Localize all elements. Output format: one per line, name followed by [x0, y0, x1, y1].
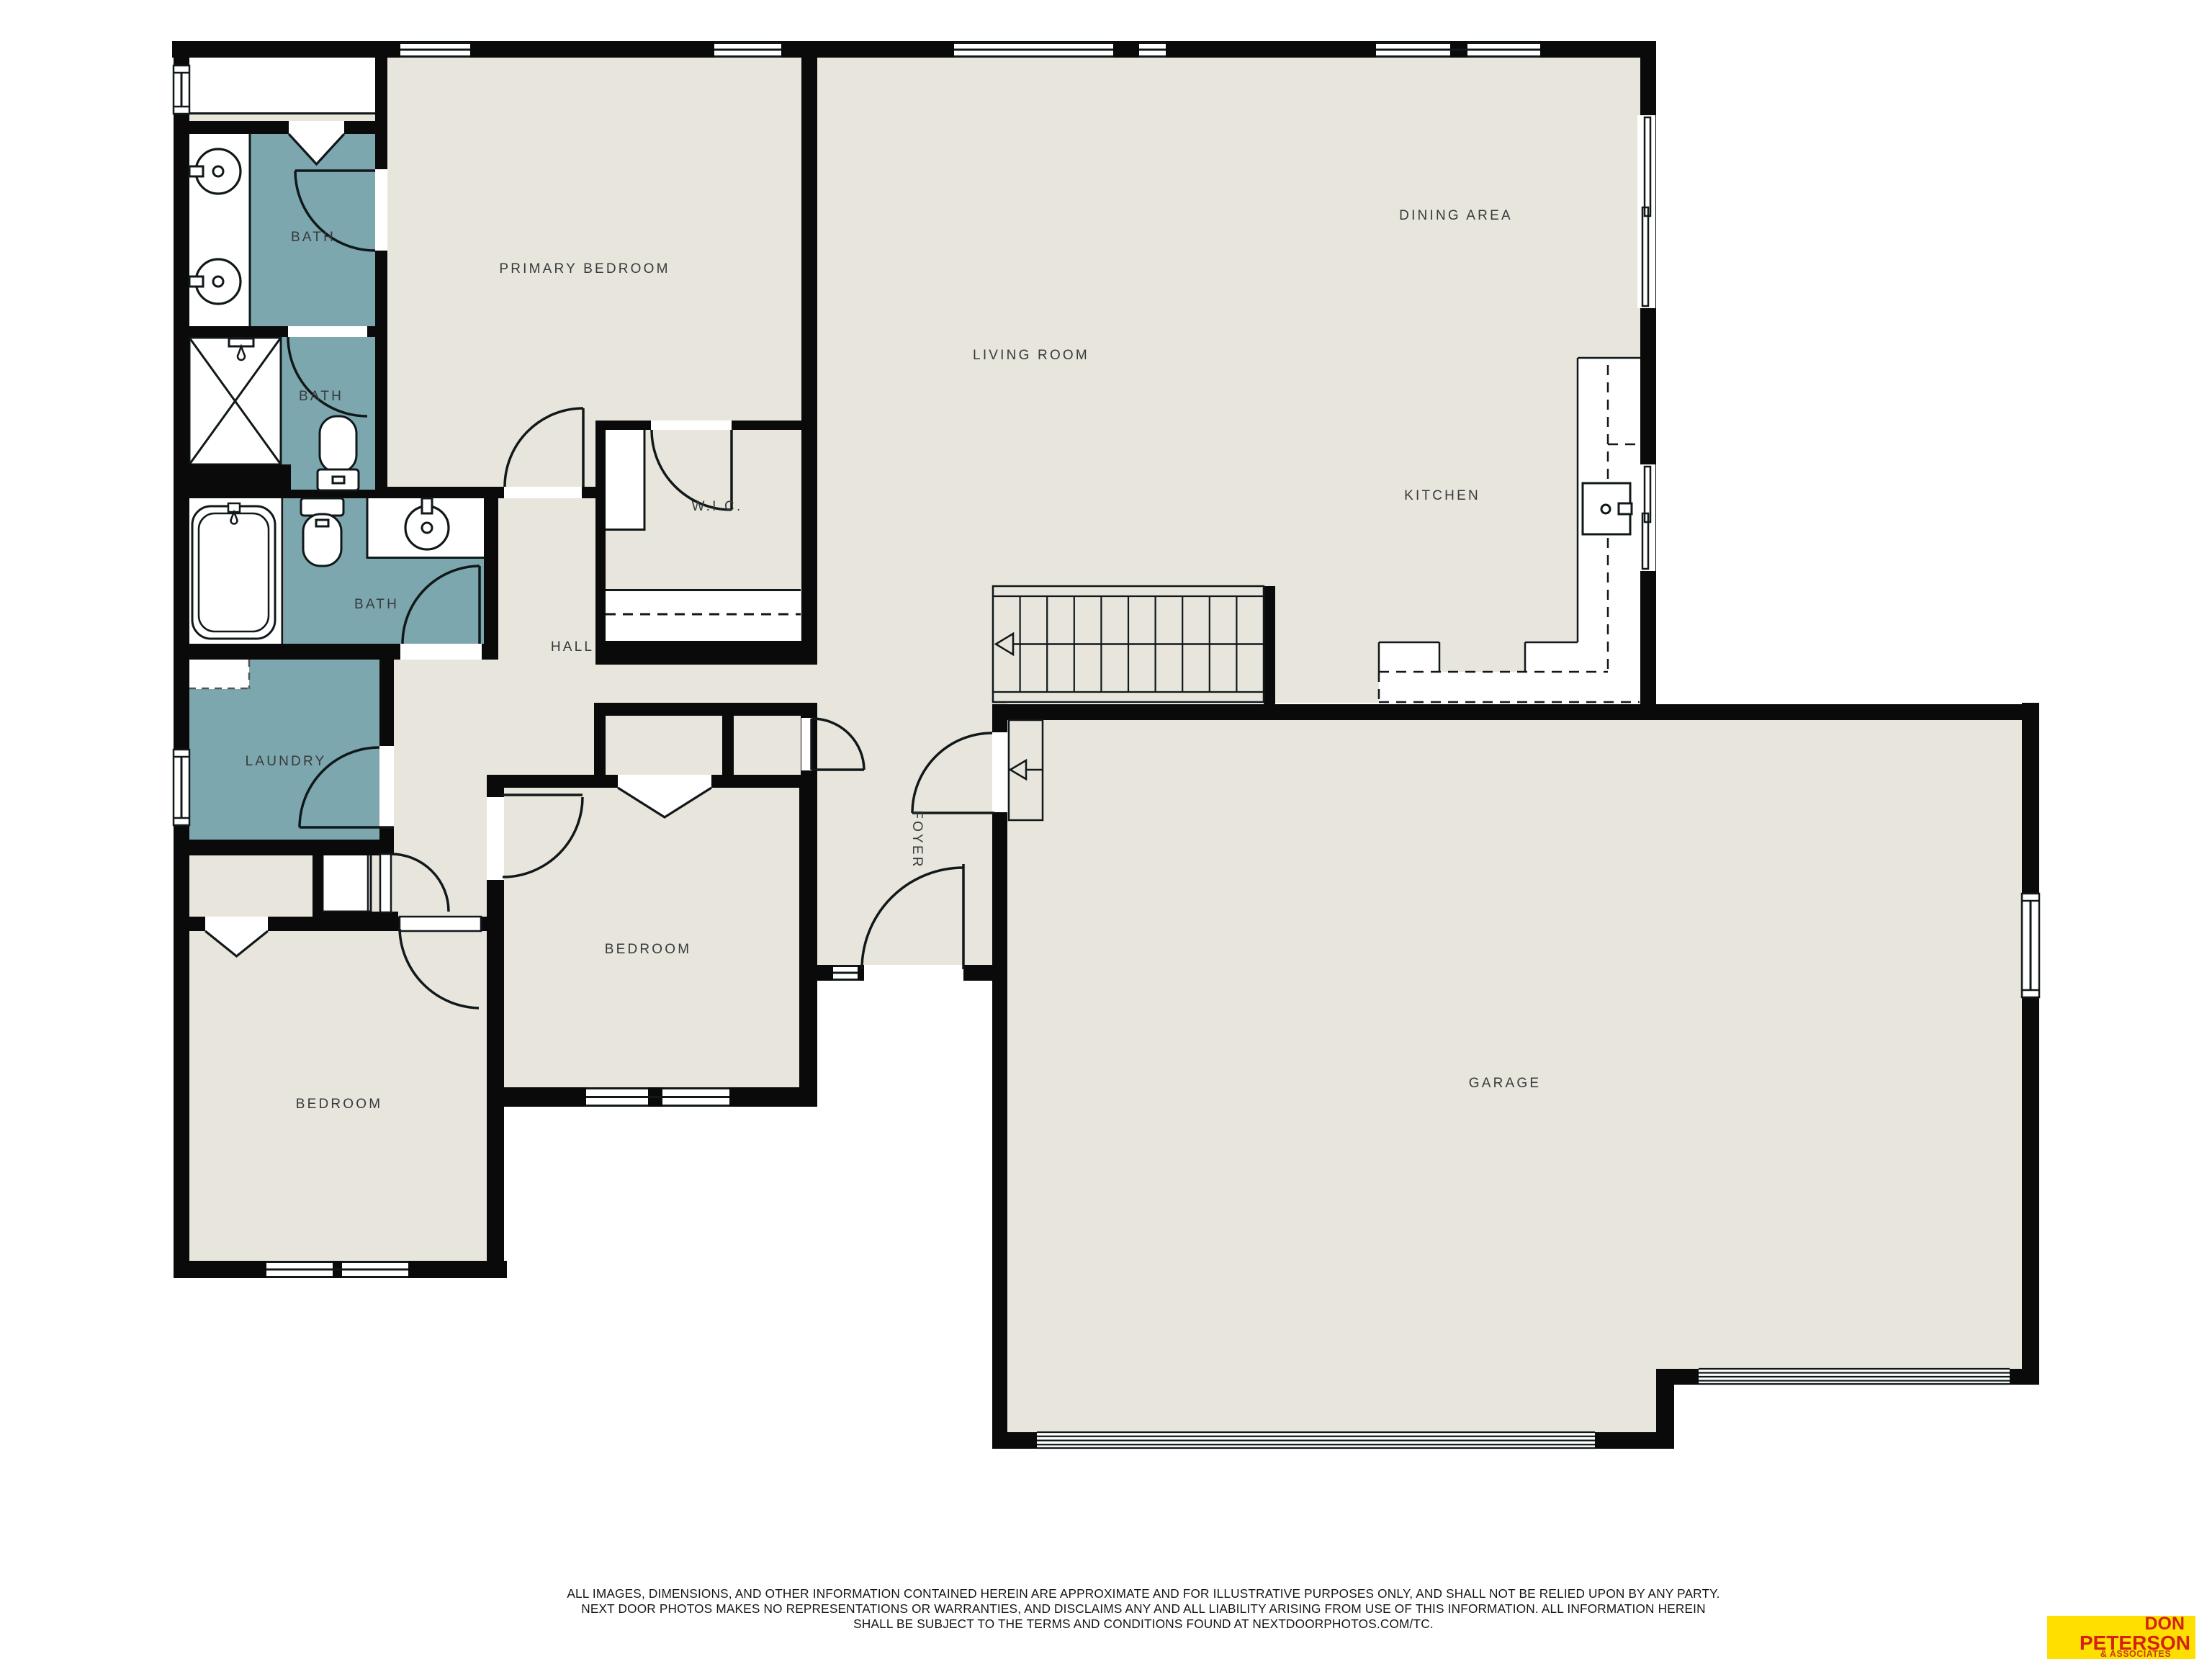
svg-text:BEDROOM: BEDROOM: [296, 1097, 383, 1112]
svg-text:FOYER: FOYER: [909, 810, 925, 868]
svg-text:NEXT DOOR PHOTOS MAKES NO REPR: NEXT DOOR PHOTOS MAKES NO REPRESENTATION…: [581, 1601, 1706, 1616]
svg-text:HALL: HALL: [551, 639, 594, 655]
svg-text:PRIMARY BEDROOM: PRIMARY BEDROOM: [499, 261, 670, 276]
svg-text:KITCHEN: KITCHEN: [1404, 488, 1480, 503]
svg-text:& ASSOCIATES: & ASSOCIATES: [2100, 1649, 2171, 1659]
svg-text:DON: DON: [2144, 1614, 2185, 1634]
svg-text:LIVING ROOM: LIVING ROOM: [973, 348, 1089, 363]
svg-text:BATH: BATH: [291, 230, 336, 245]
svg-text:W.I.C.: W.I.C.: [692, 499, 743, 514]
svg-text:BATH: BATH: [354, 597, 399, 612]
svg-text:LAUNDRY: LAUNDRY: [246, 754, 327, 769]
svg-text:GARAGE: GARAGE: [1469, 1076, 1542, 1091]
svg-text:DINING AREA: DINING AREA: [1399, 208, 1513, 223]
svg-text:SHALL BE SUBJECT TO THE TERMS: SHALL BE SUBJECT TO THE TERMS AND CONDIT…: [853, 1617, 1434, 1631]
svg-text:ALL IMAGES, DIMENSIONS, AND OT: ALL IMAGES, DIMENSIONS, AND OTHER INFORM…: [567, 1586, 1719, 1601]
svg-text:BATH: BATH: [299, 389, 343, 404]
svg-text:BEDROOM: BEDROOM: [605, 942, 692, 957]
